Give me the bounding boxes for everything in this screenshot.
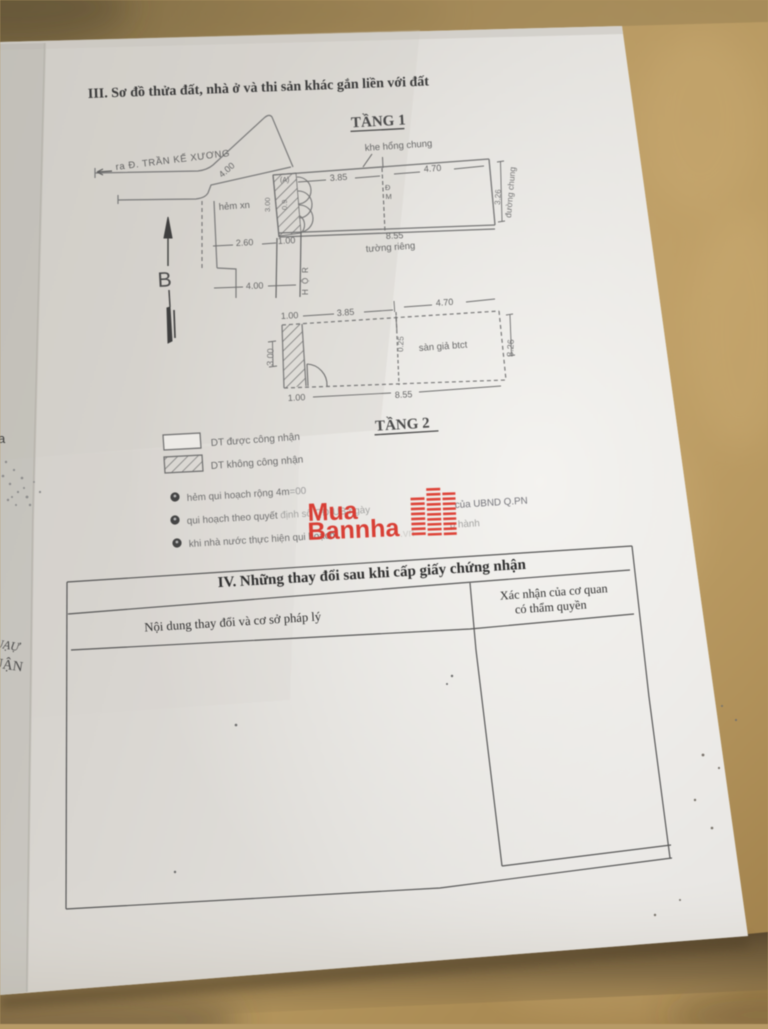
svg-text:1.00: 1.00 xyxy=(278,235,296,246)
svg-text:2.60: 2.60 xyxy=(236,237,254,248)
svg-text:(A): (A) xyxy=(280,177,289,184)
svg-text:3.26: 3.26 xyxy=(505,339,516,357)
svg-text:H: H xyxy=(301,289,310,295)
svg-text:3.85: 3.85 xyxy=(336,307,354,318)
svg-text:a: a xyxy=(0,431,6,446)
svg-text:1.00: 1.00 xyxy=(281,310,299,321)
svg-text:8.55: 8.55 xyxy=(395,389,413,400)
svg-text:Bannha: Bannha xyxy=(307,514,401,546)
svg-text:3.00: 3.00 xyxy=(263,197,272,212)
svg-text:0.25: 0.25 xyxy=(396,336,406,352)
svg-text:M: M xyxy=(386,192,392,201)
svg-text:R: R xyxy=(301,267,310,273)
svg-text:3.85: 3.85 xyxy=(329,172,347,183)
svg-text:3.00: 3.00 xyxy=(265,348,276,366)
svg-text:Đ: Đ xyxy=(385,183,391,192)
svg-text:8.55: 8.55 xyxy=(386,230,404,241)
svg-text:1.00: 1.00 xyxy=(288,392,306,403)
svg-text:3.26: 3.26 xyxy=(493,189,503,206)
svg-text:4.00: 4.00 xyxy=(246,280,264,291)
svg-text:Ộ: Ộ xyxy=(301,278,310,284)
svg-text:4.70: 4.70 xyxy=(435,297,453,308)
svg-text:B: B xyxy=(157,268,172,292)
svg-text:0.9: 0.9 xyxy=(280,200,289,210)
svg-text:4.70: 4.70 xyxy=(423,163,441,174)
svg-text:hẻm xn: hẻm xn xyxy=(218,200,250,213)
